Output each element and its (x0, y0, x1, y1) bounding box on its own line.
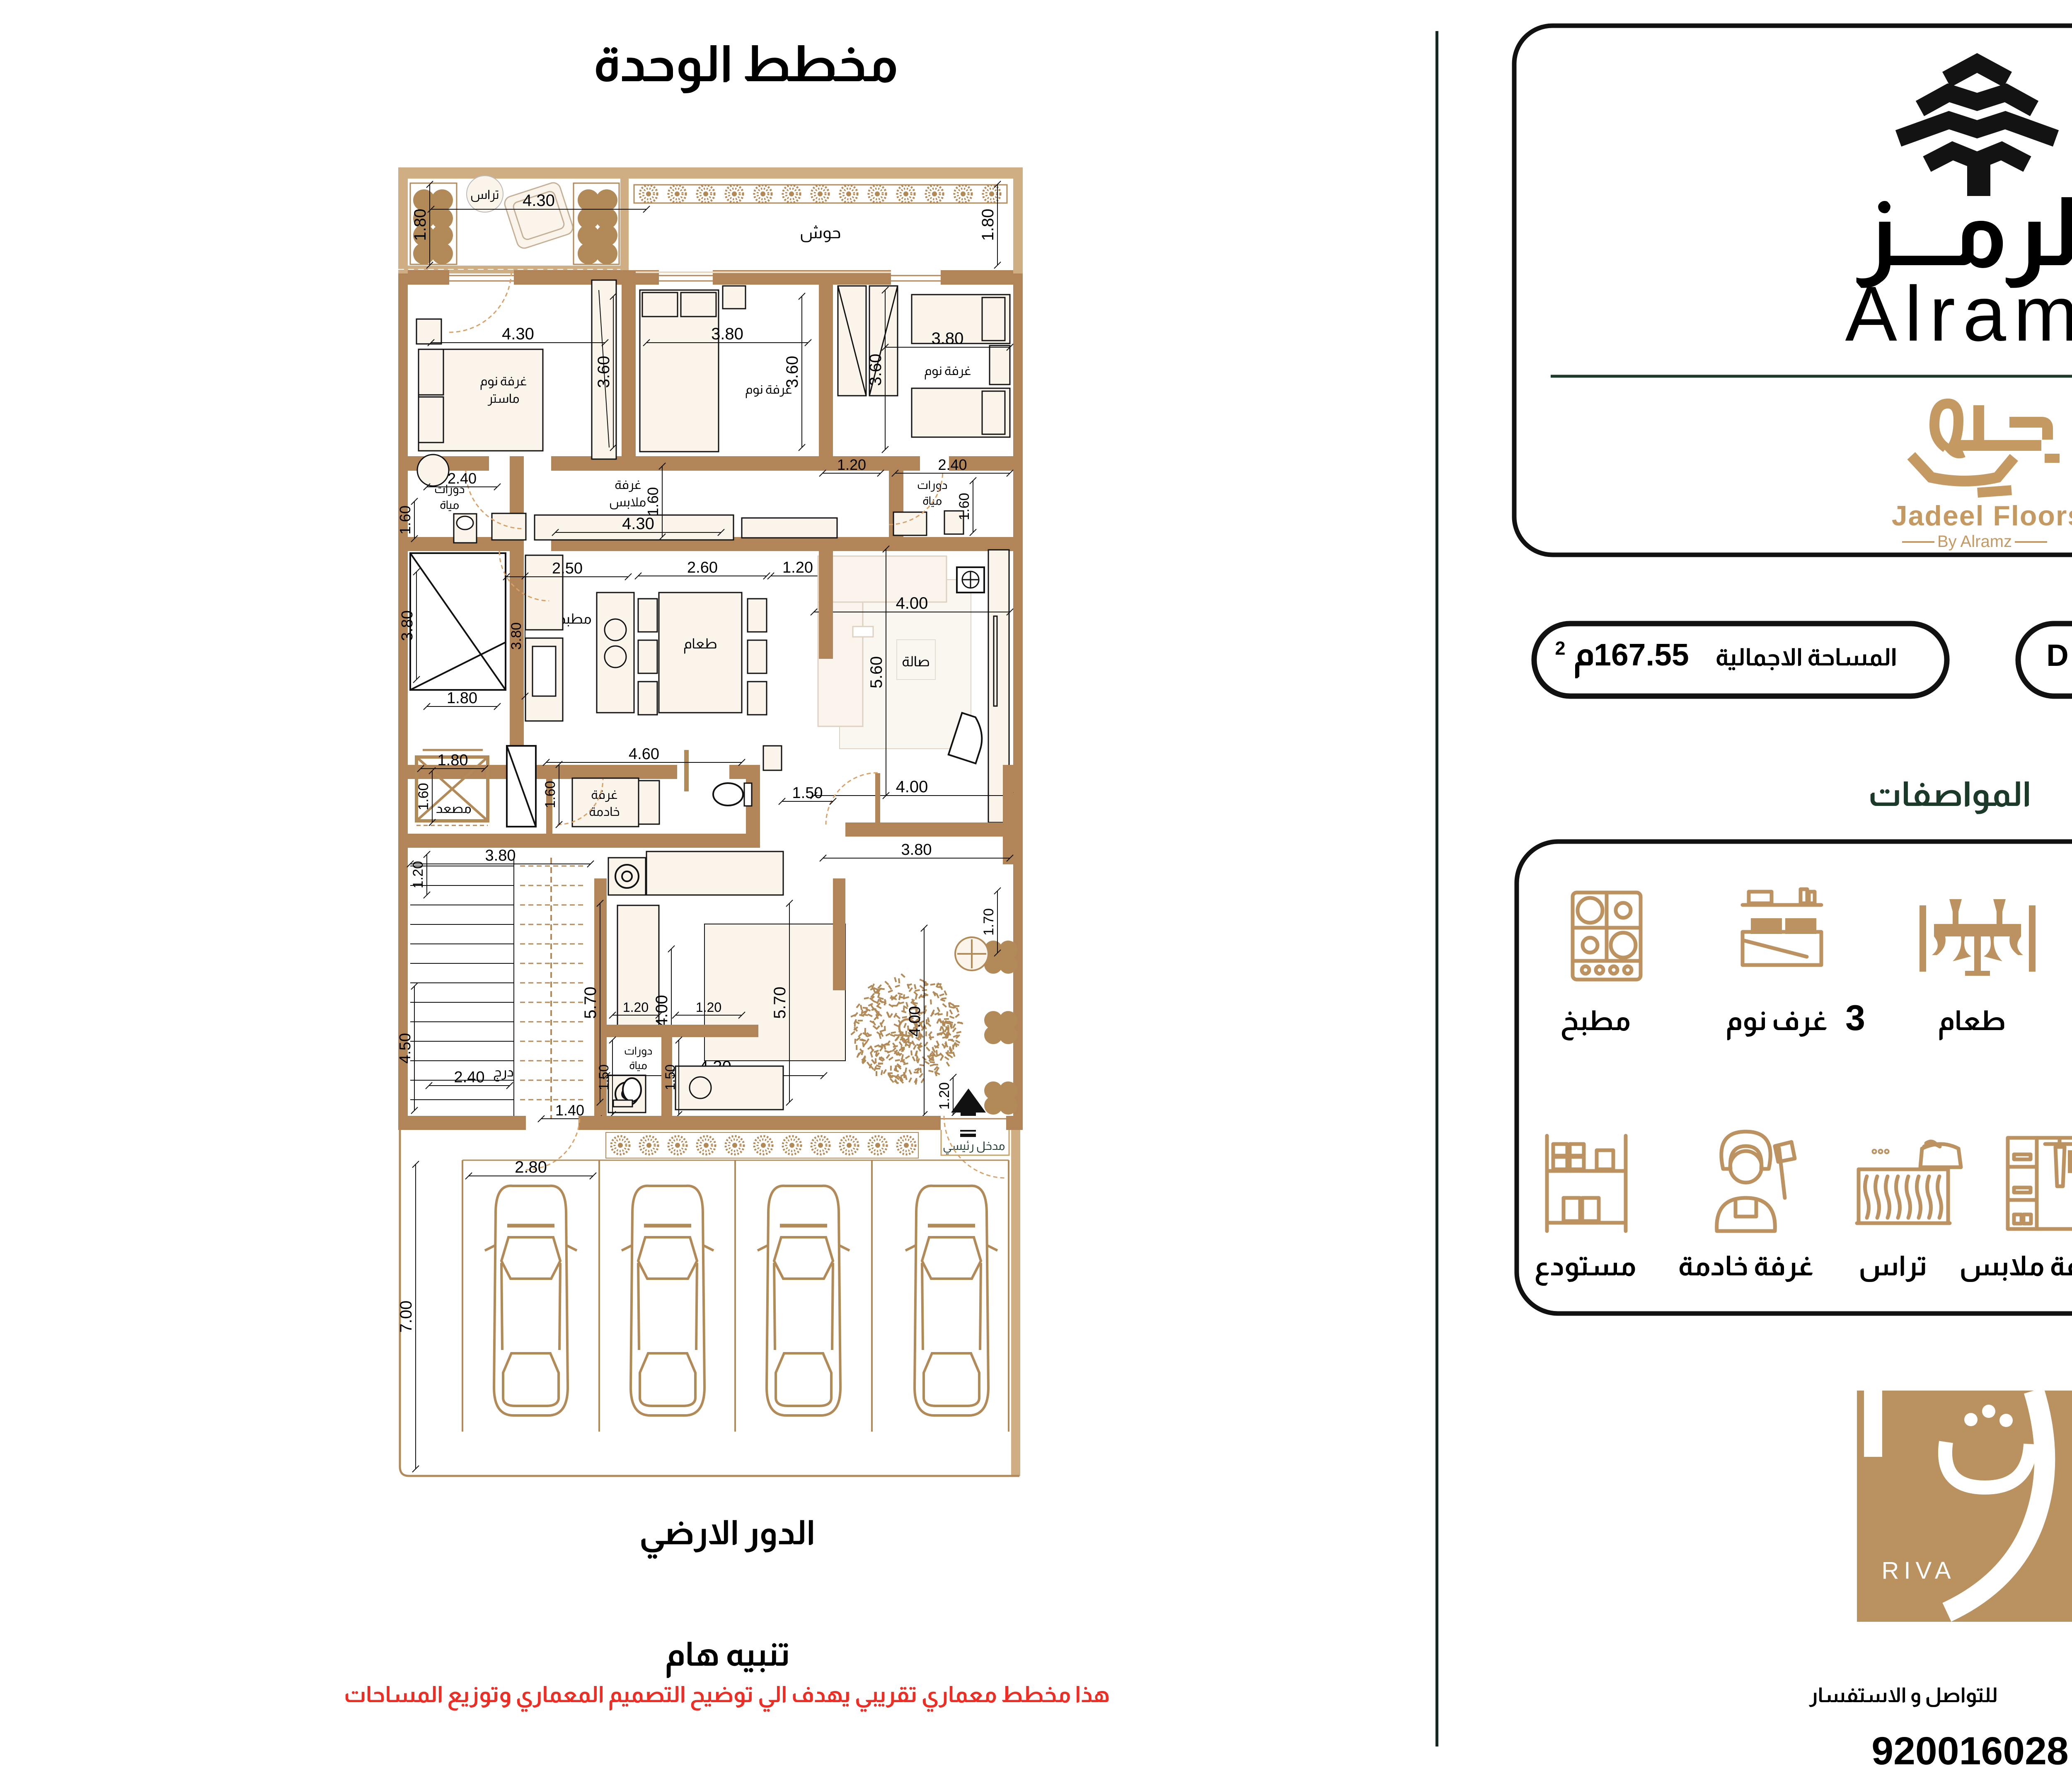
svg-text:1.80: 1.80 (979, 209, 997, 241)
svg-text:Alramz: Alramz (1845, 270, 2072, 357)
svg-text:5.70: 5.70 (771, 987, 789, 1019)
svg-text:2.40: 2.40 (448, 470, 477, 487)
svg-text:1.70: 1.70 (981, 908, 997, 936)
svg-text:3: 3 (1845, 998, 1865, 1038)
svg-text:1.60: 1.60 (397, 506, 414, 535)
svg-text:3.60: 3.60 (783, 356, 801, 388)
svg-text:3.60: 3.60 (867, 354, 885, 386)
svg-text:3.80: 3.80 (508, 622, 524, 650)
svg-text:1.60: 1.60 (416, 783, 431, 810)
svg-text:4.00: 4.00 (653, 995, 671, 1027)
svg-text:2.40: 2.40 (938, 456, 967, 473)
svg-text:4.00: 4.00 (906, 1006, 924, 1037)
svg-text:2: 2 (1555, 638, 1565, 659)
svg-text:3.80: 3.80 (901, 841, 932, 859)
svg-text:4.00: 4.00 (896, 594, 928, 612)
svg-text:920016028: 920016028 (1871, 1729, 2069, 1773)
svg-text:2.80: 2.80 (515, 1158, 547, 1176)
svg-text:1.60: 1.60 (644, 487, 661, 516)
svg-text:1.50: 1.50 (792, 784, 823, 802)
svg-text:RIVA: RIVA (1881, 1557, 1956, 1584)
svg-text:1.20: 1.20 (410, 861, 426, 888)
svg-text:By Alramz: By Alramz (1937, 532, 2012, 551)
svg-text:2.60: 2.60 (687, 559, 718, 576)
svg-text:3.80: 3.80 (485, 847, 516, 864)
svg-text:4.30: 4.30 (502, 325, 534, 343)
svg-text:3.80: 3.80 (711, 325, 743, 343)
svg-text:1.80: 1.80 (411, 209, 429, 241)
svg-text:1.20: 1.20 (782, 559, 813, 576)
svg-text:2.50: 2.50 (552, 560, 583, 577)
svg-text:7.00: 7.00 (397, 1301, 415, 1333)
svg-text:1.20: 1.20 (837, 456, 866, 473)
svg-text:4.30: 4.30 (523, 191, 555, 210)
svg-text:5.70: 5.70 (581, 987, 600, 1019)
svg-text:1.20: 1.20 (937, 1082, 952, 1110)
svg-text:1.50: 1.50 (596, 1064, 611, 1090)
svg-text:4.50: 4.50 (397, 1033, 414, 1064)
svg-text:4.00: 4.00 (896, 778, 928, 796)
svg-text:167.55: 167.55 (1594, 637, 1689, 672)
svg-text:3.80: 3.80 (399, 610, 416, 641)
svg-text:3.60: 3.60 (595, 356, 613, 388)
svg-text:1.80: 1.80 (447, 689, 477, 707)
svg-text:1.60: 1.60 (956, 493, 972, 520)
svg-text:2.40: 2.40 (454, 1069, 485, 1086)
svg-text:1.60: 1.60 (542, 781, 558, 808)
svg-text:Jadeel Floors: Jadeel Floors (1892, 500, 2072, 532)
svg-text:4.60: 4.60 (629, 745, 659, 763)
svg-text:4.30: 4.30 (622, 515, 654, 533)
svg-text:1.80: 1.80 (438, 752, 468, 769)
svg-text:1.50: 1.50 (663, 1064, 678, 1090)
svg-text:D: D (2046, 638, 2068, 672)
svg-text:1.20: 1.20 (696, 1000, 721, 1015)
svg-text:5.60: 5.60 (867, 656, 886, 689)
svg-text:1.20: 1.20 (623, 1000, 649, 1015)
svg-text:3.80: 3.80 (932, 329, 964, 348)
